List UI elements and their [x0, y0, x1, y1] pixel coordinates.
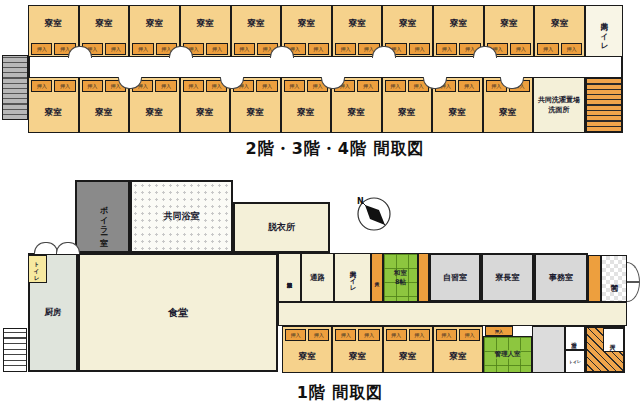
closet-strip: 押入 [485, 326, 513, 336]
closet-row: 押入押入 [29, 78, 78, 93]
closet: 押入 [82, 80, 103, 92]
compass-north-label: N [357, 197, 364, 206]
dorm-leader-label: 寮長室 [496, 272, 520, 283]
laundry-area-room: 共同洗濯置場 [278, 253, 301, 302]
floor-plan-image: 寮室押入押入寮室押入押入寮室押入押入寮室押入押入寮室押入押入寮室押入押入寮室押入… [0, 0, 640, 406]
dorm-room: 寮室押入押入 [433, 326, 483, 373]
dining-hall: 食堂 [78, 253, 278, 372]
closet: 押入 [155, 80, 176, 92]
washitsu-label-line2: 8帖 [395, 278, 406, 287]
dorm-room-label: 寮室 [29, 93, 78, 132]
dining-hall-label: 食堂 [168, 306, 188, 320]
dorm-room-label: 寮室 [130, 6, 179, 41]
closet: 押入 [357, 80, 378, 92]
closet-label: 押入 [495, 329, 503, 334]
toilet-tiny-label: トイレ [569, 359, 581, 364]
closet: 押入 [436, 329, 457, 341]
lower-left-staircase [3, 328, 27, 372]
compass-icon: N [354, 194, 394, 234]
toilet-small-label: トイレ [34, 258, 41, 280]
lower-corridor [278, 302, 627, 326]
upper-laundry-label-line2: 洗面所 [549, 105, 570, 115]
closet-row: 押入押入 [434, 327, 482, 342]
closet-room: 押入 [603, 328, 624, 352]
bath-room-small: 浴室 [565, 326, 585, 350]
upper-left-staircase [2, 55, 28, 120]
closet-strip [418, 253, 429, 302]
closet: 押入 [409, 329, 430, 341]
passage-label: 通路 [310, 273, 325, 283]
entrance-label: 玄関 [609, 278, 619, 280]
manager-vestibule [532, 326, 565, 373]
dorm-room-label: 寮室 [181, 6, 230, 41]
closet: 押入 [284, 80, 305, 92]
dorm-room-label: 寮室 [332, 93, 381, 132]
dorm-room-label: 寮室 [80, 6, 129, 41]
shared-bath-room: 共同浴室 [130, 180, 233, 253]
closet: 押入 [510, 43, 531, 55]
office-label: 事務室 [549, 272, 573, 283]
dorm-room-label: 寮室 [384, 342, 432, 372]
shared-toilet-room-1f: 共同トイレ [334, 253, 371, 302]
dorm-room-label: 寮室 [535, 6, 584, 41]
kitchen-label: 厨房 [45, 307, 62, 319]
dorm-room-label: 寮室 [434, 6, 483, 41]
closet: 押入 [537, 43, 558, 55]
entrance-door-arc [627, 282, 640, 302]
dorm-room: 寮室押入押入 [382, 77, 433, 133]
shared-bath-label: 共同浴室 [164, 210, 200, 223]
dorm-room-label: 寮室 [383, 93, 432, 132]
closet: 押入 [409, 43, 430, 55]
dorm-room-label: 寮室 [434, 342, 482, 372]
closet: 押入 [31, 80, 52, 92]
dorm-room-label: 寮室 [232, 6, 281, 41]
shared-toilet-1f-label: 共同トイレ [348, 266, 357, 288]
closet-row: 押入押入 [535, 41, 584, 56]
dorm-room-label: 寮室 [433, 93, 482, 132]
office-room: 事務室 [534, 253, 588, 302]
dorm-room-label: 寮室 [484, 93, 533, 132]
closet: 押入 [54, 80, 75, 92]
closet: 押入 [436, 43, 457, 55]
upper-top-room-row: 寮室押入押入寮室押入押入寮室押入押入寮室押入押入寮室押入押入寮室押入押入寮室押入… [28, 5, 585, 57]
dorm-room: 寮室押入押入 [282, 326, 332, 373]
manager-room-label: 管理人室 [495, 350, 521, 359]
dorm-room-label: 寮室 [333, 342, 381, 372]
upper-shared-toilet-label: 共同トイレ [599, 16, 609, 47]
entrance-door-arc [627, 262, 640, 282]
dorm-room-label: 寮室 [282, 6, 331, 41]
closet-strip [588, 255, 601, 302]
washitsu-room: 和室 8帖 [383, 253, 418, 302]
lower-plan-title: 1階 間取図 [40, 383, 640, 404]
closet: 押入 [308, 329, 329, 341]
toilet-room-tiny: トイレ [565, 350, 585, 373]
lower-room-row: 寮室押入押入寮室押入押入寮室押入押入寮室押入押入 [282, 326, 483, 373]
manager-room: 管理人室 [483, 336, 532, 373]
closet: 押入 [234, 43, 255, 55]
study-room: 自習室 [429, 253, 481, 302]
dorm-room: 寮室押入押入 [332, 326, 382, 373]
dorm-room-label: 寮室 [283, 342, 331, 372]
closet-row: 押入押入 [283, 327, 331, 342]
upper-laundry-room: 共同洗濯置場 洗面所 [533, 77, 585, 133]
washitsu-label-line1: 和室 [394, 269, 407, 278]
closet: 押入 [132, 43, 153, 55]
dorm-room-label: 寮室 [130, 93, 179, 132]
dorm-room-label: 寮室 [231, 93, 280, 132]
dorm-room-label: 寮室 [485, 6, 534, 41]
dorm-room-label: 寮室 [333, 6, 382, 41]
closet: 押入 [358, 329, 379, 341]
dorm-room-label: 寮室 [282, 93, 331, 132]
dressing-room: 脱衣所 [233, 202, 330, 253]
closet: 押入 [335, 329, 356, 341]
closet: 押入 [285, 329, 306, 341]
dorm-room-label: 寮室 [80, 93, 129, 132]
entrance-hall: 玄関 [601, 255, 627, 302]
toilet-room-small: トイレ [28, 255, 47, 283]
passage-room: 通路 [301, 253, 334, 302]
dorm-room: 寮室押入押入 [534, 5, 585, 57]
closet-row: 押入押入 [333, 327, 381, 342]
boiler-room-label: ボイラー室 [97, 200, 108, 232]
closet: 押入 [386, 329, 407, 341]
dorm-room: 寮室押入押入 [28, 77, 79, 133]
closet-strip: 押入 [371, 253, 383, 302]
dorm-room: 寮室押入押入 [383, 326, 433, 373]
closet: 押入 [183, 80, 204, 92]
door-arc [34, 242, 58, 254]
closet: 押入 [256, 80, 277, 92]
boiler-room: ボイラー室 [75, 180, 130, 253]
upper-bottom-room-row: 寮室押入押入寮室押入押入寮室押入押入寮室押入押入寮室押入押入寮室押入押入寮室押入… [28, 77, 533, 133]
closet: 押入 [31, 43, 52, 55]
closet: 押入 [105, 43, 126, 55]
study-room-label: 自習室 [443, 272, 467, 283]
dressing-room-label: 脱衣所 [268, 221, 295, 234]
dorm-room-label: 寮室 [29, 6, 78, 41]
closet: 押入 [206, 43, 227, 55]
upper-shared-toilet-room: 共同トイレ [585, 5, 623, 57]
closet: 押入 [308, 43, 329, 55]
upper-laundry-label-line1: 共同洗濯置場 [538, 95, 580, 105]
closet: 押入 [335, 43, 356, 55]
closet: 押入 [458, 80, 479, 92]
closet: 押入 [561, 43, 582, 55]
dorm-room-label: 寮室 [383, 6, 432, 41]
dorm-leader-room: 寮長室 [481, 253, 534, 302]
closet: 押入 [385, 80, 406, 92]
closet: 押入 [459, 329, 480, 341]
closet-row: 押入押入 [384, 327, 432, 342]
upper-plan-title: 2階・3階・4階 間取図 [30, 139, 640, 160]
upper-right-staircase [585, 77, 623, 133]
dorm-room-label: 寮室 [181, 93, 230, 132]
